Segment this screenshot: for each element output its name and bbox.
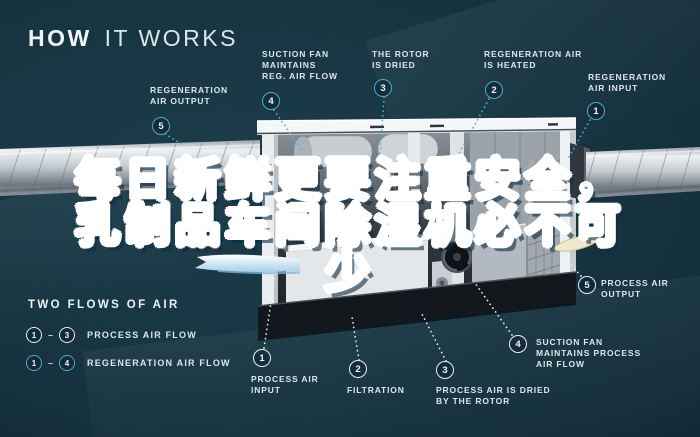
overlay-headline-line3: 少 [0, 249, 700, 295]
legend-row-regeneration: 1 – 4 REGENERATION AIR FLOW [26, 355, 231, 371]
step-badge-process-2: 2 [349, 360, 367, 378]
step-badge-process-3: 3 [436, 361, 454, 379]
label-process-air-dried: PROCESS AIR IS DRIED BY THE ROTOR [436, 385, 550, 407]
label-regeneration-air-input: REGENERATION AIR INPUT [588, 72, 666, 94]
step-number: 2 [491, 85, 496, 96]
step-number: 5 [158, 121, 163, 132]
overlay-headline-line2: 乳制品车间除湿机必不可 [0, 203, 700, 249]
step-badge-process-4: 4 [509, 335, 527, 353]
step-badge-regeneration-5: 5 [152, 117, 170, 135]
step-badge-process-1: 1 [253, 349, 271, 367]
infographic-canvas: HOW IT WORKS REGENERATION AIR OUTPUT 5 S… [0, 0, 700, 437]
legend-badge: 1 [26, 355, 42, 371]
step-badge-regeneration-3: 3 [374, 79, 392, 97]
label-filtration: FILTRATION [347, 385, 405, 396]
overlay-headline-line1: 每日新鲜更要注重安全， [0, 157, 700, 203]
label-regeneration-air-heated: REGENERATION AIR IS HEATED [484, 49, 582, 71]
label-suction-fan-reg: SUCTION FAN MAINTAINS REG. AIR FLOW [262, 49, 338, 82]
page-title: HOW IT WORKS [28, 25, 238, 52]
legend-number: 1 [32, 359, 36, 368]
legend-title: TWO FLOWS OF AIR [28, 299, 180, 311]
legend-dash: – [48, 358, 53, 368]
step-number: 4 [268, 96, 273, 107]
step-badge-regeneration-2: 2 [485, 81, 503, 99]
step-badge-regeneration-4: 4 [262, 92, 280, 110]
legend-label-regeneration: REGENERATION AIR FLOW [87, 358, 231, 368]
label-process-air-input: PROCESS AIR INPUT [251, 374, 319, 396]
legend-badge: 4 [59, 355, 75, 371]
legend-number: 4 [65, 359, 69, 368]
legend-number: 1 [32, 331, 36, 340]
step-number: 3 [380, 83, 385, 94]
step-number: 1 [259, 353, 264, 364]
page-title-light: IT WORKS [105, 25, 238, 51]
label-rotor-is-dried: THE ROTOR IS DRIED [372, 49, 430, 71]
legend-badge: 1 [26, 327, 42, 343]
legend-row-process: 1 – 3 PROCESS AIR FLOW [26, 327, 197, 343]
page-title-bold: HOW [28, 25, 92, 51]
legend-label-process: PROCESS AIR FLOW [87, 330, 197, 340]
label-suction-fan-process: SUCTION FAN MAINTAINS PROCESS AIR FLOW [536, 337, 641, 370]
step-number: 2 [355, 364, 360, 375]
legend-badge: 3 [59, 327, 75, 343]
step-number: 4 [515, 339, 520, 350]
legend-number: 3 [65, 331, 69, 340]
overlay-headline: 每日新鲜更要注重安全， 乳制品车间除湿机必不可 少 [0, 157, 700, 295]
label-regeneration-air-output: REGENERATION AIR OUTPUT [150, 85, 228, 107]
step-badge-regeneration-1: 1 [587, 102, 605, 120]
step-number: 1 [593, 106, 598, 117]
legend-dash: – [48, 330, 53, 340]
step-number: 3 [442, 365, 447, 376]
